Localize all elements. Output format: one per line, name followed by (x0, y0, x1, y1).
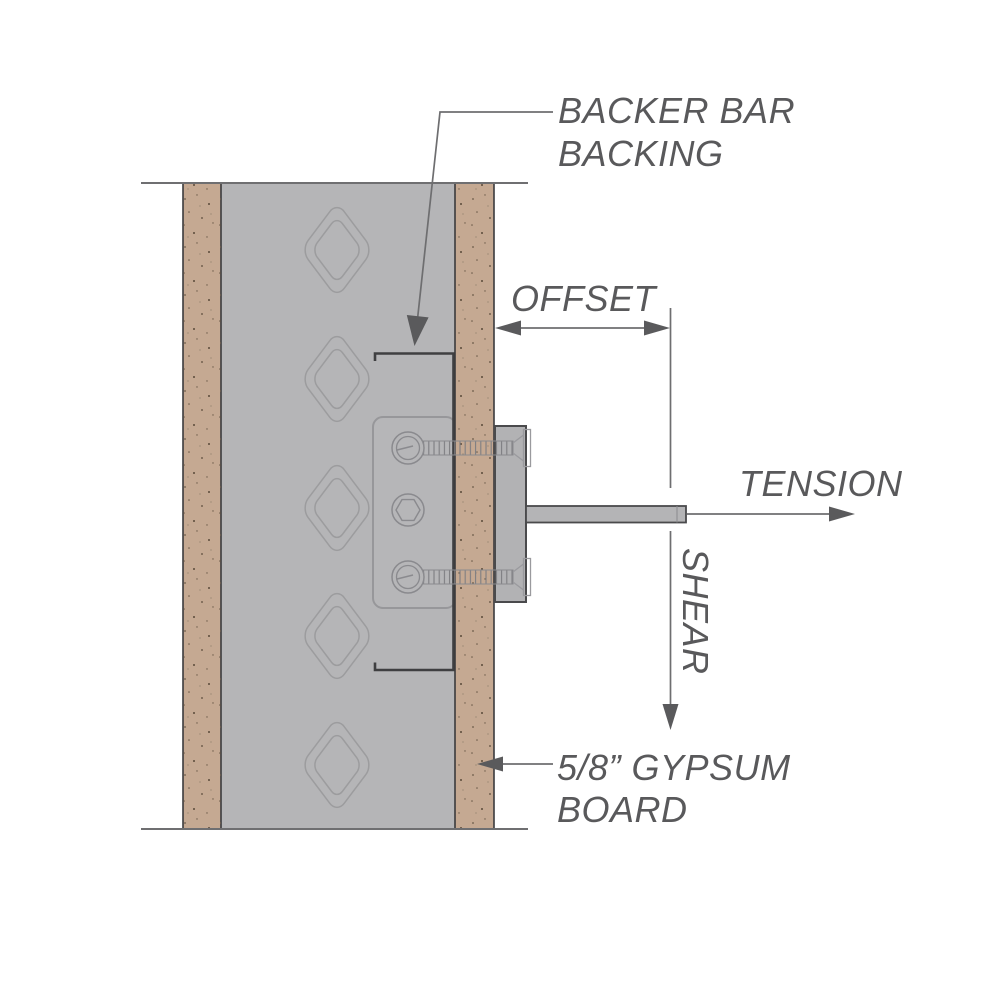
backer-bar-label-line1: BACKER BAR (558, 90, 795, 131)
backer-bar-label-line2: BACKING (558, 133, 724, 174)
offset-dimension (495, 321, 670, 336)
hex-bolt-middle (392, 494, 424, 526)
gypsum-board-label-line1: 5/8” GYPSUM (557, 747, 791, 788)
gypsum-board-label-line2: BOARD (557, 789, 688, 830)
screw-bottom-shaft (421, 570, 513, 584)
gypsum-left-speckle (183, 183, 221, 829)
tension-label: TENSION (739, 463, 903, 504)
shear-arrowhead-icon (663, 704, 679, 730)
detail-diagram-svg: BACKER BAR BACKING OFFSET TENSION SHEAR … (0, 0, 1000, 1000)
tension-arrowhead-icon (829, 507, 855, 522)
offset-label: OFFSET (511, 278, 659, 319)
gypsum-right-speckle (455, 183, 494, 829)
tension-rod (526, 506, 686, 523)
offset-arrowhead-right-icon (644, 321, 670, 336)
screw-top-shaft (421, 441, 513, 455)
offset-arrowhead-left-icon (495, 321, 521, 336)
tension-rod-bar (526, 506, 686, 523)
detail-drawing-canvas: BACKER BAR BACKING OFFSET TENSION SHEAR … (0, 0, 1000, 1000)
gypsum-board-right (455, 183, 494, 829)
tension-force-arrow (687, 507, 855, 522)
shear-label: SHEAR (675, 548, 716, 675)
gypsum-board-left (183, 183, 221, 829)
